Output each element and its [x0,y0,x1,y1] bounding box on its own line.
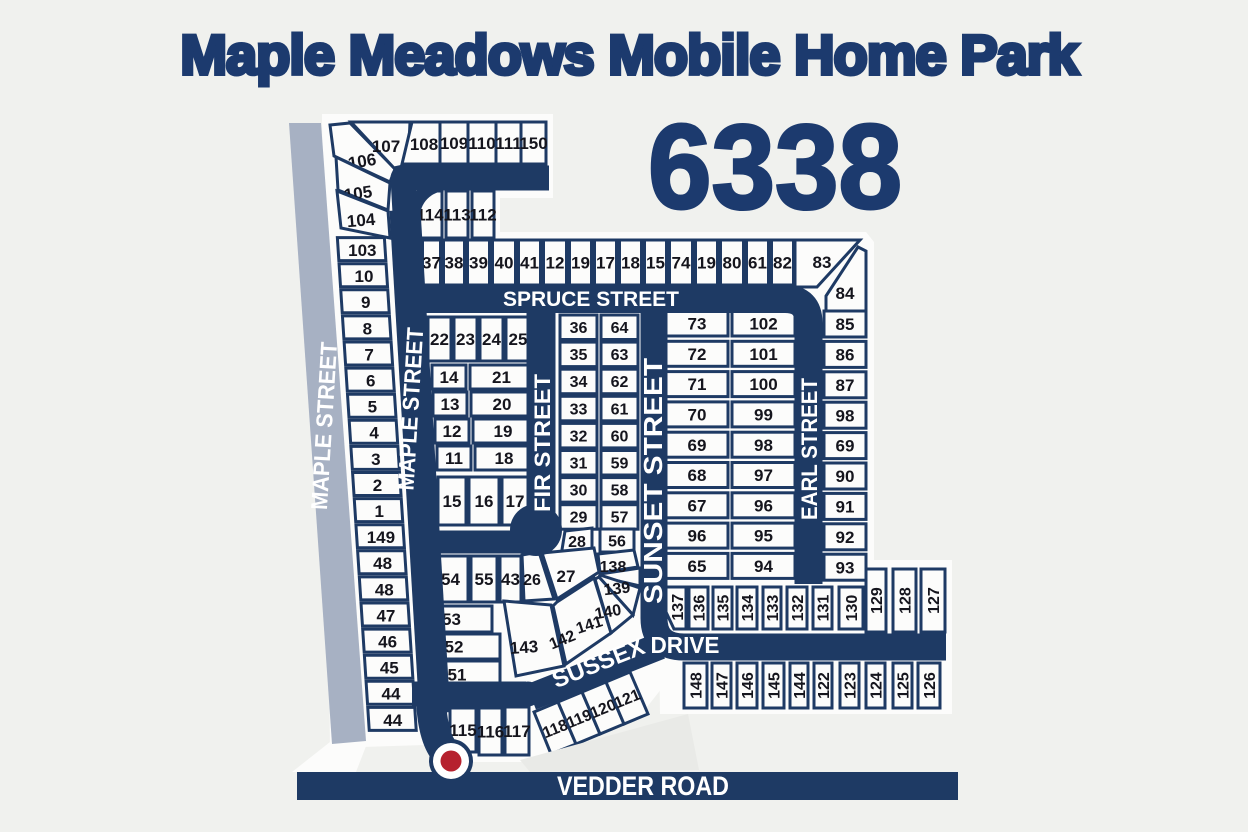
svg-text:47: 47 [376,606,395,625]
svg-text:74: 74 [672,254,691,273]
svg-text:25: 25 [509,330,528,349]
svg-text:101: 101 [749,345,777,364]
svg-text:60: 60 [611,428,629,445]
svg-text:VEDDER ROAD: VEDDER ROAD [557,771,729,801]
svg-text:16: 16 [475,492,494,511]
svg-text:9: 9 [361,293,370,312]
svg-text:67: 67 [688,496,707,515]
svg-text:59: 59 [611,456,629,473]
svg-text:134: 134 [740,595,757,622]
svg-text:70: 70 [688,406,707,425]
svg-text:31: 31 [570,456,588,473]
svg-text:40: 40 [495,254,514,273]
svg-text:98: 98 [754,436,773,455]
svg-text:57: 57 [611,510,629,527]
svg-text:17: 17 [596,254,615,273]
svg-text:43: 43 [501,570,520,589]
svg-text:38: 38 [445,254,464,273]
svg-text:69: 69 [836,437,855,456]
svg-text:107: 107 [372,137,400,156]
svg-text:69: 69 [688,436,707,455]
svg-text:37: 37 [422,254,441,273]
svg-text:87: 87 [836,376,855,395]
svg-text:100: 100 [749,375,777,394]
svg-text:110: 110 [468,134,495,153]
svg-text:86: 86 [836,346,855,365]
svg-text:Maple Meadows Mobile Home Park: Maple Meadows Mobile Home Park [180,23,1079,86]
svg-text:56: 56 [608,533,626,550]
svg-text:111: 111 [495,134,522,153]
svg-text:139: 139 [603,580,631,600]
svg-text:7: 7 [364,345,373,364]
svg-text:137: 137 [670,594,687,621]
svg-text:58: 58 [611,483,629,500]
svg-text:46: 46 [378,633,397,652]
svg-text:19: 19 [571,254,590,273]
svg-text:12: 12 [546,254,565,273]
svg-text:48: 48 [373,554,392,573]
svg-text:63: 63 [611,347,629,364]
svg-text:104: 104 [346,210,376,231]
svg-text:72: 72 [688,345,707,364]
svg-text:48: 48 [375,580,394,599]
svg-text:10: 10 [355,267,374,286]
svg-text:61: 61 [611,401,629,418]
svg-text:112: 112 [469,206,496,225]
svg-text:96: 96 [688,527,707,546]
svg-text:143: 143 [509,637,539,658]
svg-text:35: 35 [570,347,588,364]
svg-text:44: 44 [383,711,402,730]
svg-text:18: 18 [621,254,640,273]
svg-text:65: 65 [688,557,707,576]
svg-text:61: 61 [748,254,767,273]
svg-text:45: 45 [380,659,399,678]
svg-text:108: 108 [410,135,438,154]
svg-text:145: 145 [766,672,783,699]
svg-text:84: 84 [836,284,855,303]
svg-text:33: 33 [570,401,588,418]
svg-text:12: 12 [443,422,462,441]
svg-text:32: 32 [570,428,588,445]
svg-text:2: 2 [373,476,382,495]
svg-text:68: 68 [688,466,707,485]
svg-text:44: 44 [382,685,401,704]
svg-text:15: 15 [646,254,665,273]
svg-text:144: 144 [792,672,809,699]
svg-text:DRIVE: DRIVE [651,632,720,658]
svg-text:97: 97 [754,466,773,485]
svg-text:96: 96 [754,496,773,515]
svg-text:6338: 6338 [648,100,902,234]
svg-text:128: 128 [897,587,914,614]
svg-text:21: 21 [492,368,511,387]
svg-text:80: 80 [723,254,742,273]
svg-text:SPRUCE STREET: SPRUCE STREET [503,288,679,311]
svg-text:99: 99 [754,406,773,425]
svg-text:135: 135 [715,595,732,622]
svg-text:36: 36 [570,320,588,337]
svg-text:124: 124 [868,672,885,699]
svg-text:85: 85 [836,315,855,334]
svg-text:3: 3 [371,450,380,469]
svg-text:93: 93 [836,558,855,577]
svg-text:132: 132 [790,595,807,622]
svg-text:123: 123 [842,672,859,699]
svg-text:52: 52 [445,638,464,657]
svg-text:5: 5 [368,398,377,417]
svg-text:122: 122 [816,672,833,699]
svg-text:147: 147 [714,672,731,699]
svg-text:64: 64 [611,320,629,337]
svg-text:54: 54 [441,570,460,589]
svg-text:73: 73 [688,315,707,334]
svg-text:116: 116 [477,723,504,742]
svg-text:91: 91 [836,498,855,517]
svg-text:39: 39 [469,254,488,273]
svg-text:13: 13 [441,395,460,414]
svg-text:94: 94 [754,557,773,576]
svg-text:6: 6 [366,372,375,391]
svg-text:83: 83 [813,253,832,272]
svg-text:148: 148 [688,672,705,699]
svg-text:EARL STREET: EARL STREET [797,377,822,520]
svg-text:19: 19 [494,422,513,441]
svg-text:SUNSET STREET: SUNSET STREET [638,358,668,604]
svg-text:62: 62 [611,374,629,391]
svg-text:14: 14 [440,368,459,387]
svg-text:26: 26 [523,572,541,589]
svg-text:138: 138 [600,559,627,576]
svg-text:27: 27 [557,567,576,586]
svg-text:30: 30 [570,483,588,500]
svg-text:130: 130 [844,595,861,622]
svg-text:150: 150 [519,134,547,153]
svg-text:29: 29 [570,510,588,527]
svg-text:131: 131 [815,595,832,622]
svg-text:20: 20 [493,395,512,414]
svg-text:15: 15 [443,492,462,511]
svg-text:4: 4 [369,424,379,443]
svg-text:22: 22 [430,330,449,349]
svg-text:92: 92 [836,528,855,547]
svg-text:90: 90 [836,467,855,486]
svg-text:102: 102 [749,315,777,334]
svg-text:82: 82 [773,254,792,273]
svg-text:103: 103 [348,241,376,260]
svg-text:71: 71 [688,375,707,394]
svg-text:34: 34 [570,374,588,391]
svg-text:17: 17 [506,492,525,511]
svg-text:113: 113 [443,206,470,225]
svg-text:95: 95 [754,527,773,546]
svg-text:127: 127 [926,587,943,614]
svg-text:136: 136 [691,595,708,622]
svg-text:133: 133 [765,595,782,622]
svg-text:98: 98 [836,406,855,425]
svg-text:19: 19 [697,254,716,273]
svg-text:109: 109 [440,134,468,153]
svg-text:23: 23 [456,330,475,349]
svg-text:129: 129 [869,587,886,614]
svg-text:55: 55 [475,570,494,589]
svg-text:41: 41 [520,254,539,273]
svg-text:117: 117 [503,722,530,741]
svg-text:1: 1 [374,502,383,521]
svg-text:FIR STREET: FIR STREET [530,373,555,512]
svg-text:18: 18 [495,449,514,468]
svg-text:115: 115 [449,721,476,740]
svg-text:146: 146 [740,672,757,699]
svg-text:24: 24 [482,330,501,349]
svg-text:125: 125 [895,672,912,699]
svg-text:8: 8 [363,319,372,338]
svg-text:149: 149 [367,528,395,547]
svg-text:126: 126 [922,672,939,699]
svg-text:11: 11 [445,449,463,468]
